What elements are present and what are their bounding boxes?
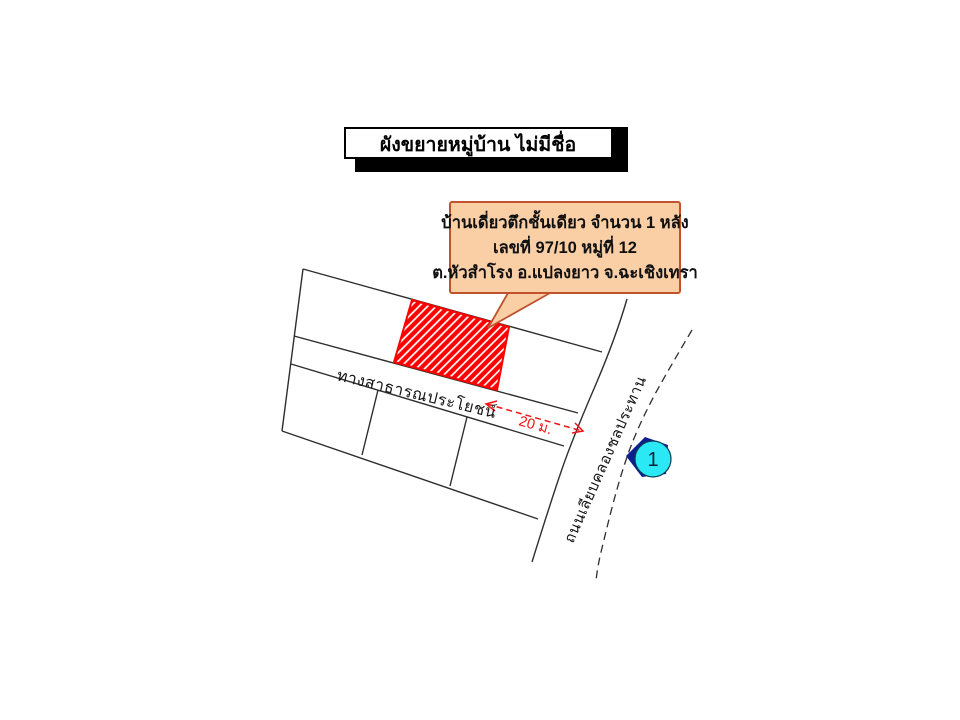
dimension-label: 20 ม. bbox=[517, 413, 554, 438]
callout-line-3: ต.หัวสำโรง อ.แปลงยาว จ.ฉะเชิงเทรา bbox=[432, 262, 698, 282]
callout-line-2: เลขที่ 97/10 หมู่ที่ 12 bbox=[493, 235, 637, 259]
page-title: ผังขยายหมู่บ้าน ไม่มีชื่อ bbox=[380, 130, 576, 158]
callout-line-1: บ้านเดี่ยวตึกชั้นเดียว จำนวน 1 หลัง bbox=[441, 210, 689, 232]
grid-left-edge bbox=[282, 269, 303, 431]
marker-number: 1 bbox=[647, 449, 658, 471]
highlighted-parcel bbox=[394, 300, 509, 390]
parcel-divider-2 bbox=[450, 417, 467, 486]
grid-bottom-edge bbox=[282, 431, 538, 519]
title-block: ผังขยายหมู่บ้าน ไม่มีชื่อ bbox=[345, 127, 628, 172]
site-plan-svg: 20 ม. ทางสาธารณประโยชน์ ถนนเลียบคลองชลปร… bbox=[0, 0, 960, 720]
slide-page: 20 ม. ทางสาธารณประโยชน์ ถนนเลียบคลองชลปร… bbox=[0, 0, 960, 720]
location-marker: 1 bbox=[626, 437, 671, 477]
callout-balloon: บ้านเดี่ยวตึกชั้นเดียว จำนวน 1 หลัง เลขท… bbox=[432, 202, 698, 328]
parcel-divider-1 bbox=[362, 390, 378, 455]
